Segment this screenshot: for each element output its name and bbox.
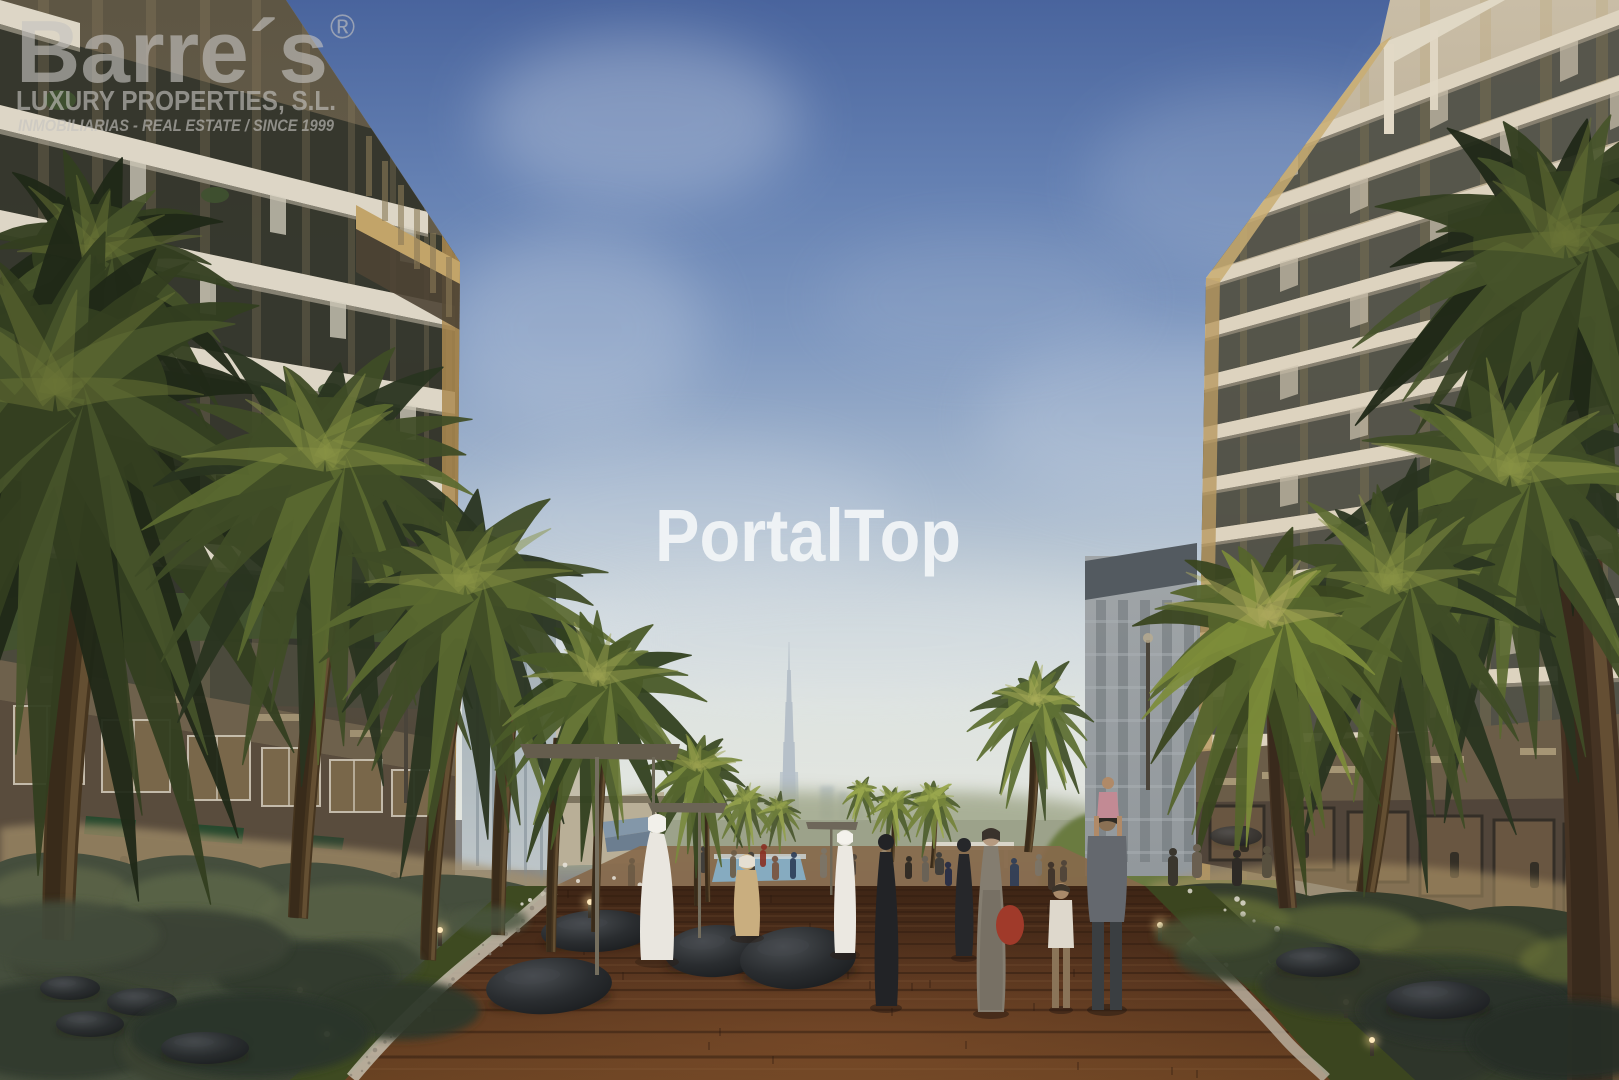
svg-text:LUXURY PROPERTIES, S.L.: LUXURY PROPERTIES, S.L. [16,85,336,116]
svg-text:®: ® [330,8,355,46]
svg-text:INMOBILIARIAS - REAL ESTATE /: INMOBILIARIAS - REAL ESTATE / SINCE 1999 [18,116,334,135]
svg-text:PortalTop: PortalTop [655,494,961,577]
